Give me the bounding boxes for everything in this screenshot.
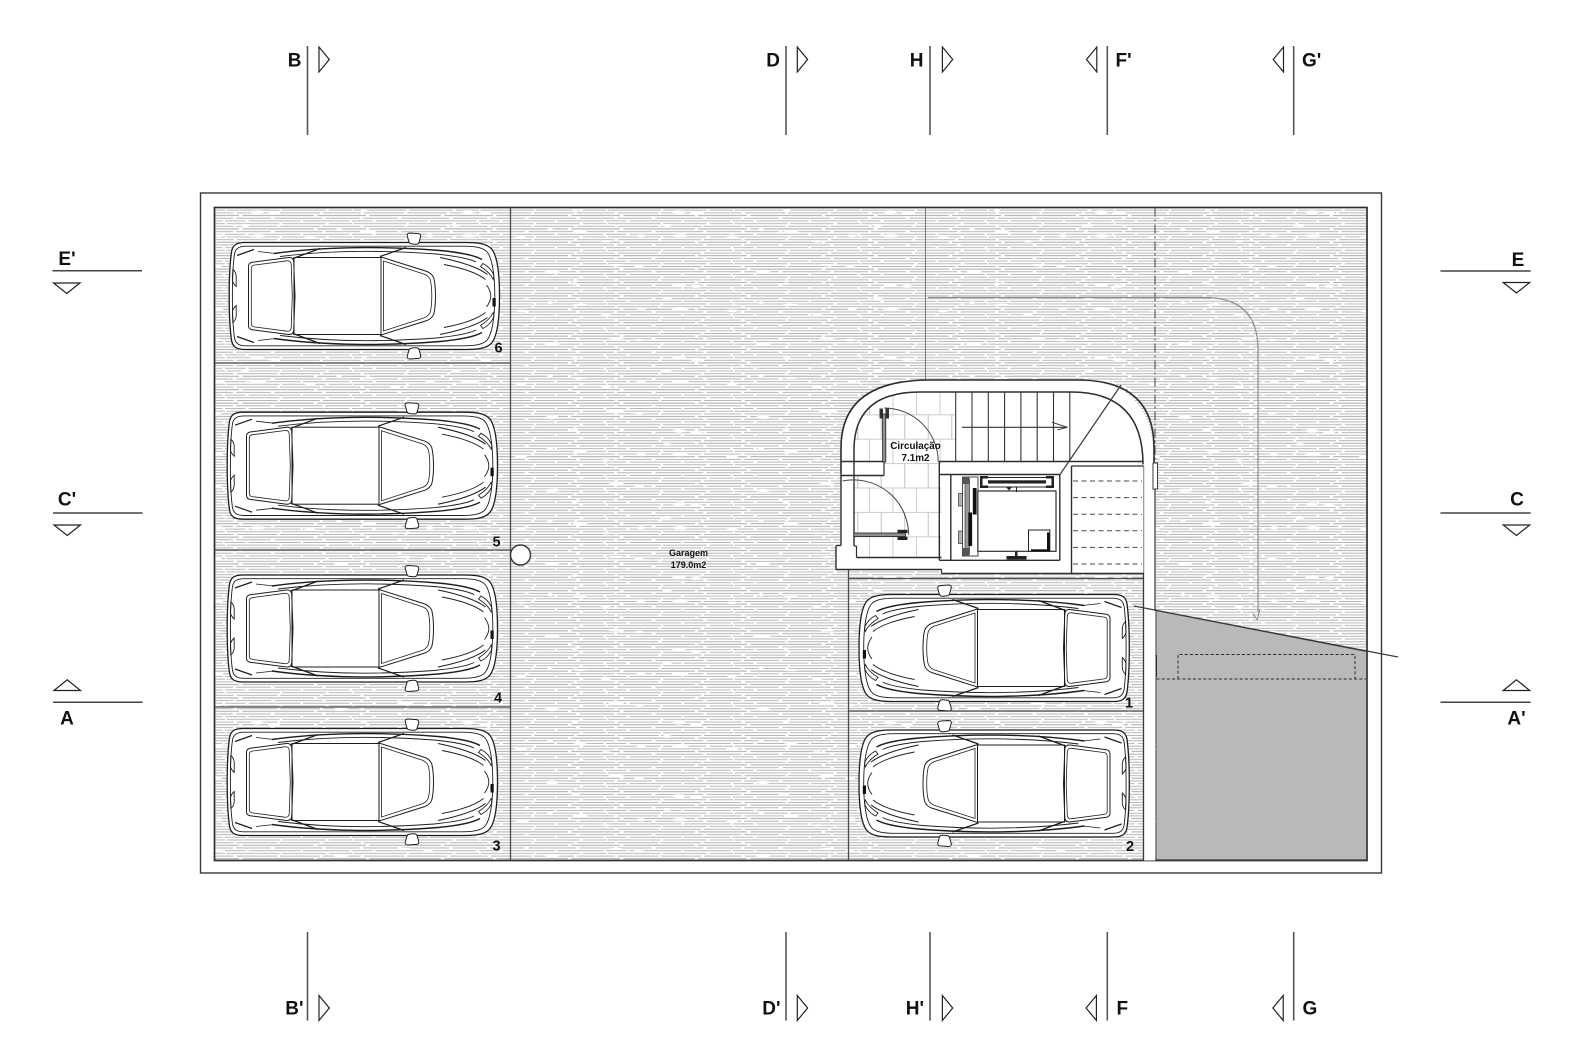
svg-text:G: G: [1303, 999, 1318, 1020]
svg-text:7.1m2: 7.1m2: [901, 453, 930, 464]
svg-text:G': G': [1302, 51, 1321, 72]
svg-text:Garagem: Garagem: [669, 548, 708, 558]
svg-text:H': H': [906, 999, 924, 1020]
svg-text:179.0m2: 179.0m2: [671, 560, 707, 570]
svg-text:C': C': [58, 490, 76, 511]
svg-text:C: C: [1510, 490, 1524, 511]
svg-text:A': A': [1507, 709, 1525, 730]
svg-text:5: 5: [492, 535, 500, 551]
svg-text:A: A: [60, 709, 74, 730]
svg-text:4: 4: [494, 691, 502, 707]
svg-text:H: H: [910, 51, 924, 72]
svg-text:3: 3: [492, 839, 500, 855]
svg-text:1: 1: [1125, 696, 1133, 712]
svg-text:F': F': [1116, 51, 1132, 72]
svg-text:6: 6: [494, 341, 502, 357]
svg-text:D: D: [766, 51, 780, 72]
svg-text:F: F: [1117, 999, 1129, 1020]
svg-text:2: 2: [1126, 839, 1134, 855]
svg-text:D': D': [762, 999, 780, 1020]
svg-text:E: E: [1512, 250, 1525, 271]
svg-text:B: B: [288, 51, 302, 72]
svg-text:B': B': [285, 999, 303, 1020]
svg-text:E': E': [58, 249, 75, 270]
svg-text:Circulação: Circulação: [890, 441, 941, 452]
